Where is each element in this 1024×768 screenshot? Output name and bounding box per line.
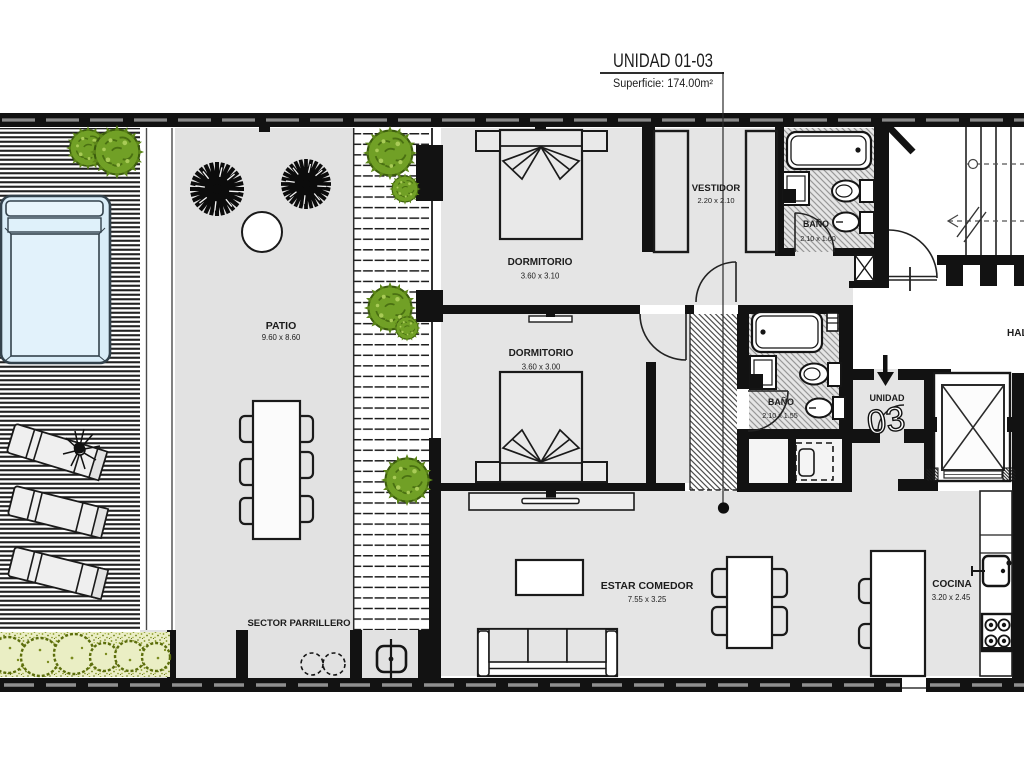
svg-text:UNIDAD 01-03: UNIDAD 01-03 bbox=[613, 51, 713, 72]
svg-text:VESTIDOR: VESTIDOR bbox=[692, 183, 741, 194]
svg-text:BAÑO: BAÑO bbox=[803, 219, 829, 229]
svg-text:ESTAR COMEDOR: ESTAR COMEDOR bbox=[601, 580, 694, 592]
svg-text:03: 03 bbox=[865, 400, 908, 443]
svg-text:2.10 x 1.60: 2.10 x 1.60 bbox=[800, 234, 836, 243]
svg-text:Superficie: 174.00m²: Superficie: 174.00m² bbox=[613, 78, 713, 90]
svg-text:7.55 x 3.25: 7.55 x 3.25 bbox=[628, 595, 667, 604]
svg-text:2.20 x 2.10: 2.20 x 2.10 bbox=[697, 196, 734, 205]
svg-text:9.60 x 8.60: 9.60 x 8.60 bbox=[262, 333, 301, 342]
svg-text:SECTOR PARRILLERO: SECTOR PARRILLERO bbox=[247, 618, 350, 629]
svg-text:3.60 x 3.00: 3.60 x 3.00 bbox=[522, 363, 561, 372]
svg-text:2.10 x 1.55: 2.10 x 1.55 bbox=[762, 411, 798, 420]
svg-text:3.60 x 3.10: 3.60 x 3.10 bbox=[521, 272, 560, 281]
svg-text:DORMITORIO: DORMITORIO bbox=[508, 257, 573, 268]
svg-text:COCINA: COCINA bbox=[932, 579, 971, 590]
svg-text:HALL: HALL bbox=[1007, 328, 1024, 339]
svg-text:PATIO: PATIO bbox=[266, 320, 297, 332]
svg-text:DORMITORIO: DORMITORIO bbox=[509, 348, 574, 359]
svg-text:3.20 x 2.45: 3.20 x 2.45 bbox=[932, 593, 971, 602]
svg-text:BAÑO: BAÑO bbox=[768, 397, 794, 407]
